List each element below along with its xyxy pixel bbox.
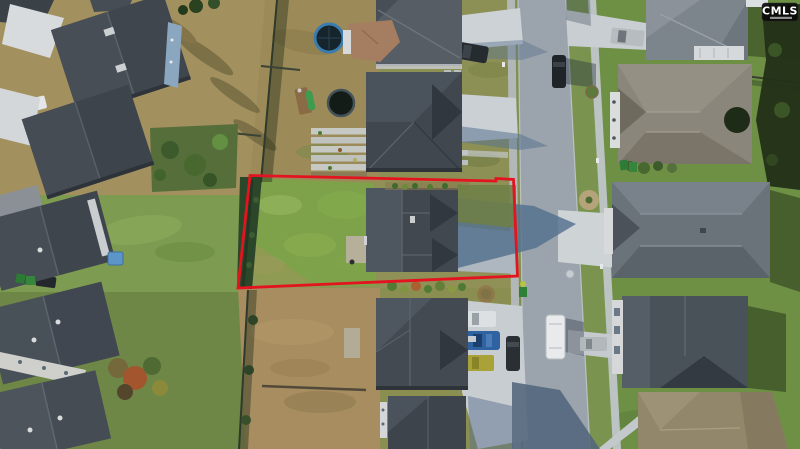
watermark-text: CMLS — [762, 5, 798, 18]
white-van — [546, 315, 565, 359]
trampoline-dark — [328, 90, 354, 116]
white-car — [466, 311, 496, 327]
kiddie-pool — [108, 252, 123, 265]
patio-subject — [346, 236, 366, 263]
subject-lot — [237, 177, 376, 289]
house-top-right — [646, 0, 748, 60]
houses-bottom-center — [376, 298, 476, 449]
house-below-subject — [376, 298, 468, 390]
patio-lower — [344, 328, 360, 358]
green-bin-right-2 — [629, 162, 637, 172]
yellow-car — [466, 355, 494, 371]
silver-car-bottom-right — [580, 337, 607, 351]
green-bin-road — [519, 287, 527, 297]
suv-parked-road-bottom — [506, 336, 520, 371]
aerial-photo: CMLS — [0, 0, 800, 449]
watermark: CMLS — [762, 3, 798, 21]
houses-right — [604, 0, 800, 449]
red-brown-ring — [479, 287, 493, 301]
green-bin-right-1 — [619, 159, 628, 170]
roof-vent — [410, 216, 415, 223]
house-right-5 — [638, 392, 788, 449]
green-bin-2 — [26, 276, 35, 285]
tree-shadow-blob — [724, 107, 750, 133]
house-right-4 — [612, 296, 748, 388]
front-lawn-shaded — [458, 185, 516, 228]
green-bin-1 — [15, 273, 25, 283]
house-bottom-edge — [380, 396, 466, 449]
suv-parked-road-top — [552, 55, 566, 88]
left-garden — [150, 124, 238, 192]
house-right-3 — [604, 182, 770, 278]
house-above-subject — [366, 72, 468, 172]
watermark-subtext-bar — [770, 17, 792, 19]
